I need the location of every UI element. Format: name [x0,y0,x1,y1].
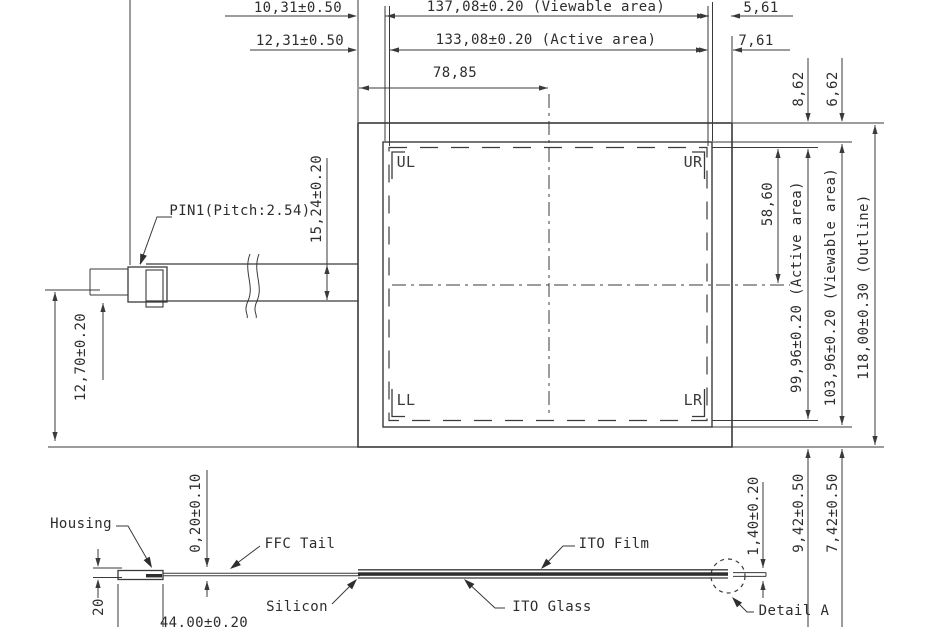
dim-top-left-1: 10,31±0.50 [254,1,342,15]
dim-viewable-height: 103,96±0.20 (Viewable area) [824,168,838,406]
dim-offset-active-top: 8,62 [792,71,806,106]
dim-viewable-width: 137,08±0.20 (Viewable area) [427,0,665,14]
connector-housing-topview [128,267,167,302]
corner-label-ll: LL [397,393,416,407]
dim-active-width: 133,08±0.20 (Active area) [436,33,657,47]
dim-stack-thickness: 1,40±0.20 [747,476,761,555]
dim-drop-1: 9,42±0.50 [792,473,806,552]
dim-offset-viewable-top: 6,62 [826,71,840,106]
dim-top-right-1: 5,61 [743,1,778,15]
dim-center-to-top: 58,60 [761,182,775,226]
ito-stack-fill [358,572,728,576]
dim-tail-offset: 12,70±0.20 [74,313,88,401]
housing-label: Housing [50,517,112,531]
dim-active-height: 99,96±0.20 (Active area) [790,181,804,393]
dim-top-left-2: 12,31±0.50 [256,34,344,48]
leader-arrows [137,253,742,607]
touch-panel-drawing: 10,31±0.50 137,08±0.20 (Viewable area) 5… [0,0,930,627]
ffc-tail-label: FFC Tail [265,537,336,551]
dim-tail-width: 15,24±0.20 [310,155,324,243]
dim-drop-2: 7,42±0.50 [826,473,840,552]
dim-partial: 20 [92,598,106,616]
glass-step-section [733,573,766,577]
dim-center-offset: 78,85 [433,66,477,80]
pin1-label: PIN1(Pitch:2.54) [169,204,310,218]
ito-film-label: ITO Film [579,537,650,551]
corner-label-ur: UR [684,155,703,169]
dim-top-right-2: 7,61 [738,34,773,48]
silicon-label: Silicon [266,600,328,614]
active-rect [389,148,707,421]
dim-tail-length: 44,00±0.20 [160,616,248,627]
dim-film-thickness: 0,20±0.10 [189,473,203,552]
ffc-tail-section [163,573,360,576]
ito-glass-label: ITO Glass [512,600,591,614]
corner-label-ul: UL [397,155,416,169]
detail-a-label: Detail A [759,604,830,618]
corner-label-lr: LR [684,393,703,407]
dim-outline-height: 118,00±0.30 (Outline) [857,194,871,379]
